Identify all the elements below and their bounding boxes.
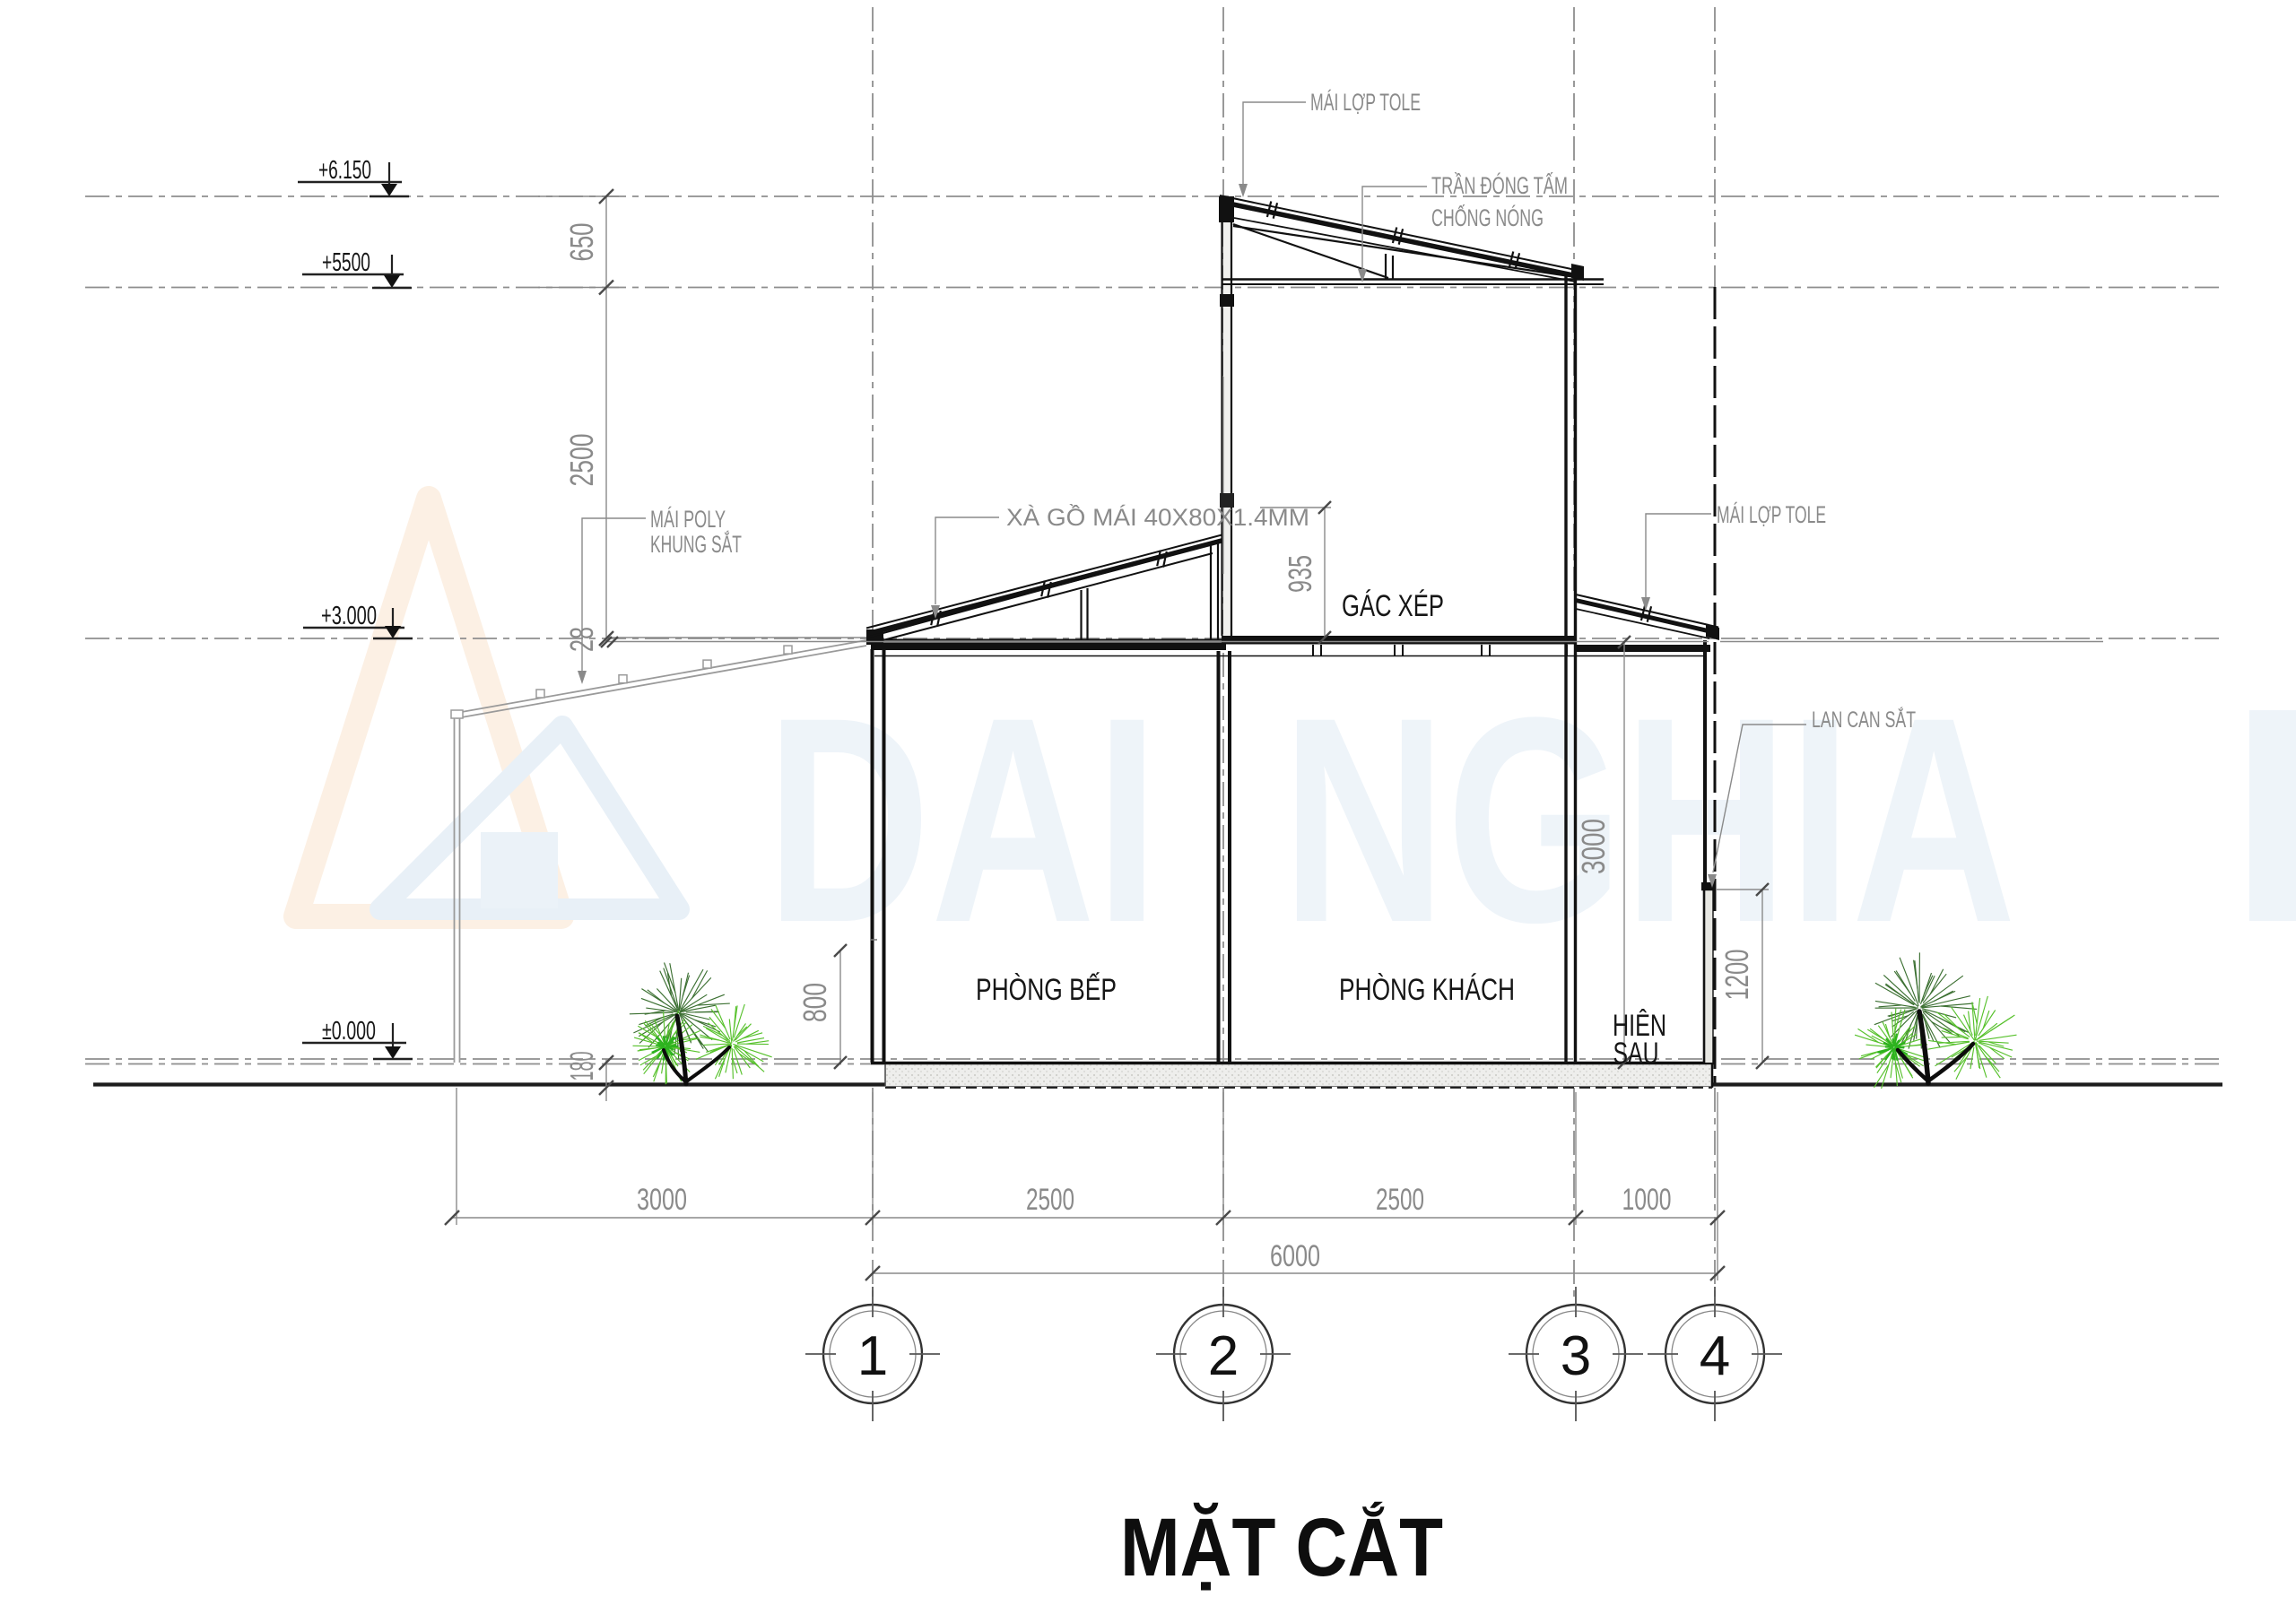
svg-text:1200: 1200 xyxy=(1718,950,1755,1001)
svg-text:800: 800 xyxy=(796,983,833,1022)
svg-text:6000: 6000 xyxy=(1270,1239,1320,1273)
svg-text:3000: 3000 xyxy=(1575,819,1612,874)
svg-text:650: 650 xyxy=(563,223,600,262)
svg-text:2500: 2500 xyxy=(563,434,600,487)
svg-text:+6.150: +6.150 xyxy=(318,156,371,185)
svg-text:MÁI LỢP TOLE: MÁI LỢP TOLE xyxy=(1717,501,1826,528)
svg-text:±0.000: ±0.000 xyxy=(322,1017,376,1046)
svg-text:935: 935 xyxy=(1282,555,1318,593)
svg-text:DAI: DAI xyxy=(766,657,1159,984)
svg-text:GÁC XÉP: GÁC XÉP xyxy=(1342,589,1444,623)
svg-text:2500: 2500 xyxy=(1026,1183,1074,1217)
svg-text:180: 180 xyxy=(563,1052,600,1081)
svg-text:PHÒNG BẾP: PHÒNG BẾP xyxy=(976,973,1117,1007)
svg-text:+3.000: +3.000 xyxy=(321,602,377,630)
svg-text:SAU: SAU xyxy=(1613,1037,1659,1071)
svg-text:1: 1 xyxy=(857,1325,888,1387)
svg-text:2500: 2500 xyxy=(1376,1183,1424,1217)
svg-text:3000: 3000 xyxy=(637,1183,687,1217)
svg-text:KHUNG SẮT: KHUNG SẮT xyxy=(650,530,742,558)
svg-text:+5500: +5500 xyxy=(322,248,370,277)
svg-text:MÁI POLY: MÁI POLY xyxy=(650,506,726,533)
svg-text:PHÒNG KHÁCH: PHÒNG KHÁCH xyxy=(1339,973,1515,1007)
svg-text:4: 4 xyxy=(1700,1325,1730,1387)
svg-text:2: 2 xyxy=(1208,1325,1239,1387)
svg-text:XÀ GỒ MÁI 40X80X1.4MM: XÀ GỒ MÁI 40X80X1.4MM xyxy=(1006,503,1309,531)
svg-text:LAN CAN SẮT: LAN CAN SẮT xyxy=(1812,706,1916,733)
svg-text:1000: 1000 xyxy=(1622,1183,1672,1217)
svg-text:MÁI LỢP TOLE: MÁI LỢP TOLE xyxy=(1310,89,1421,116)
svg-text:3: 3 xyxy=(1561,1325,1591,1387)
svg-text:CHỐNG NÓNG: CHỐNG NÓNG xyxy=(1431,203,1544,231)
svg-text:MẶT CẮT: MẶT CẮT xyxy=(1120,1501,1443,1593)
svg-text:TRẦN ĐÓNG TẤM: TRẦN ĐÓNG TẤM xyxy=(1431,171,1568,199)
svg-text:NGHIA: NGHIA xyxy=(1282,657,2016,984)
